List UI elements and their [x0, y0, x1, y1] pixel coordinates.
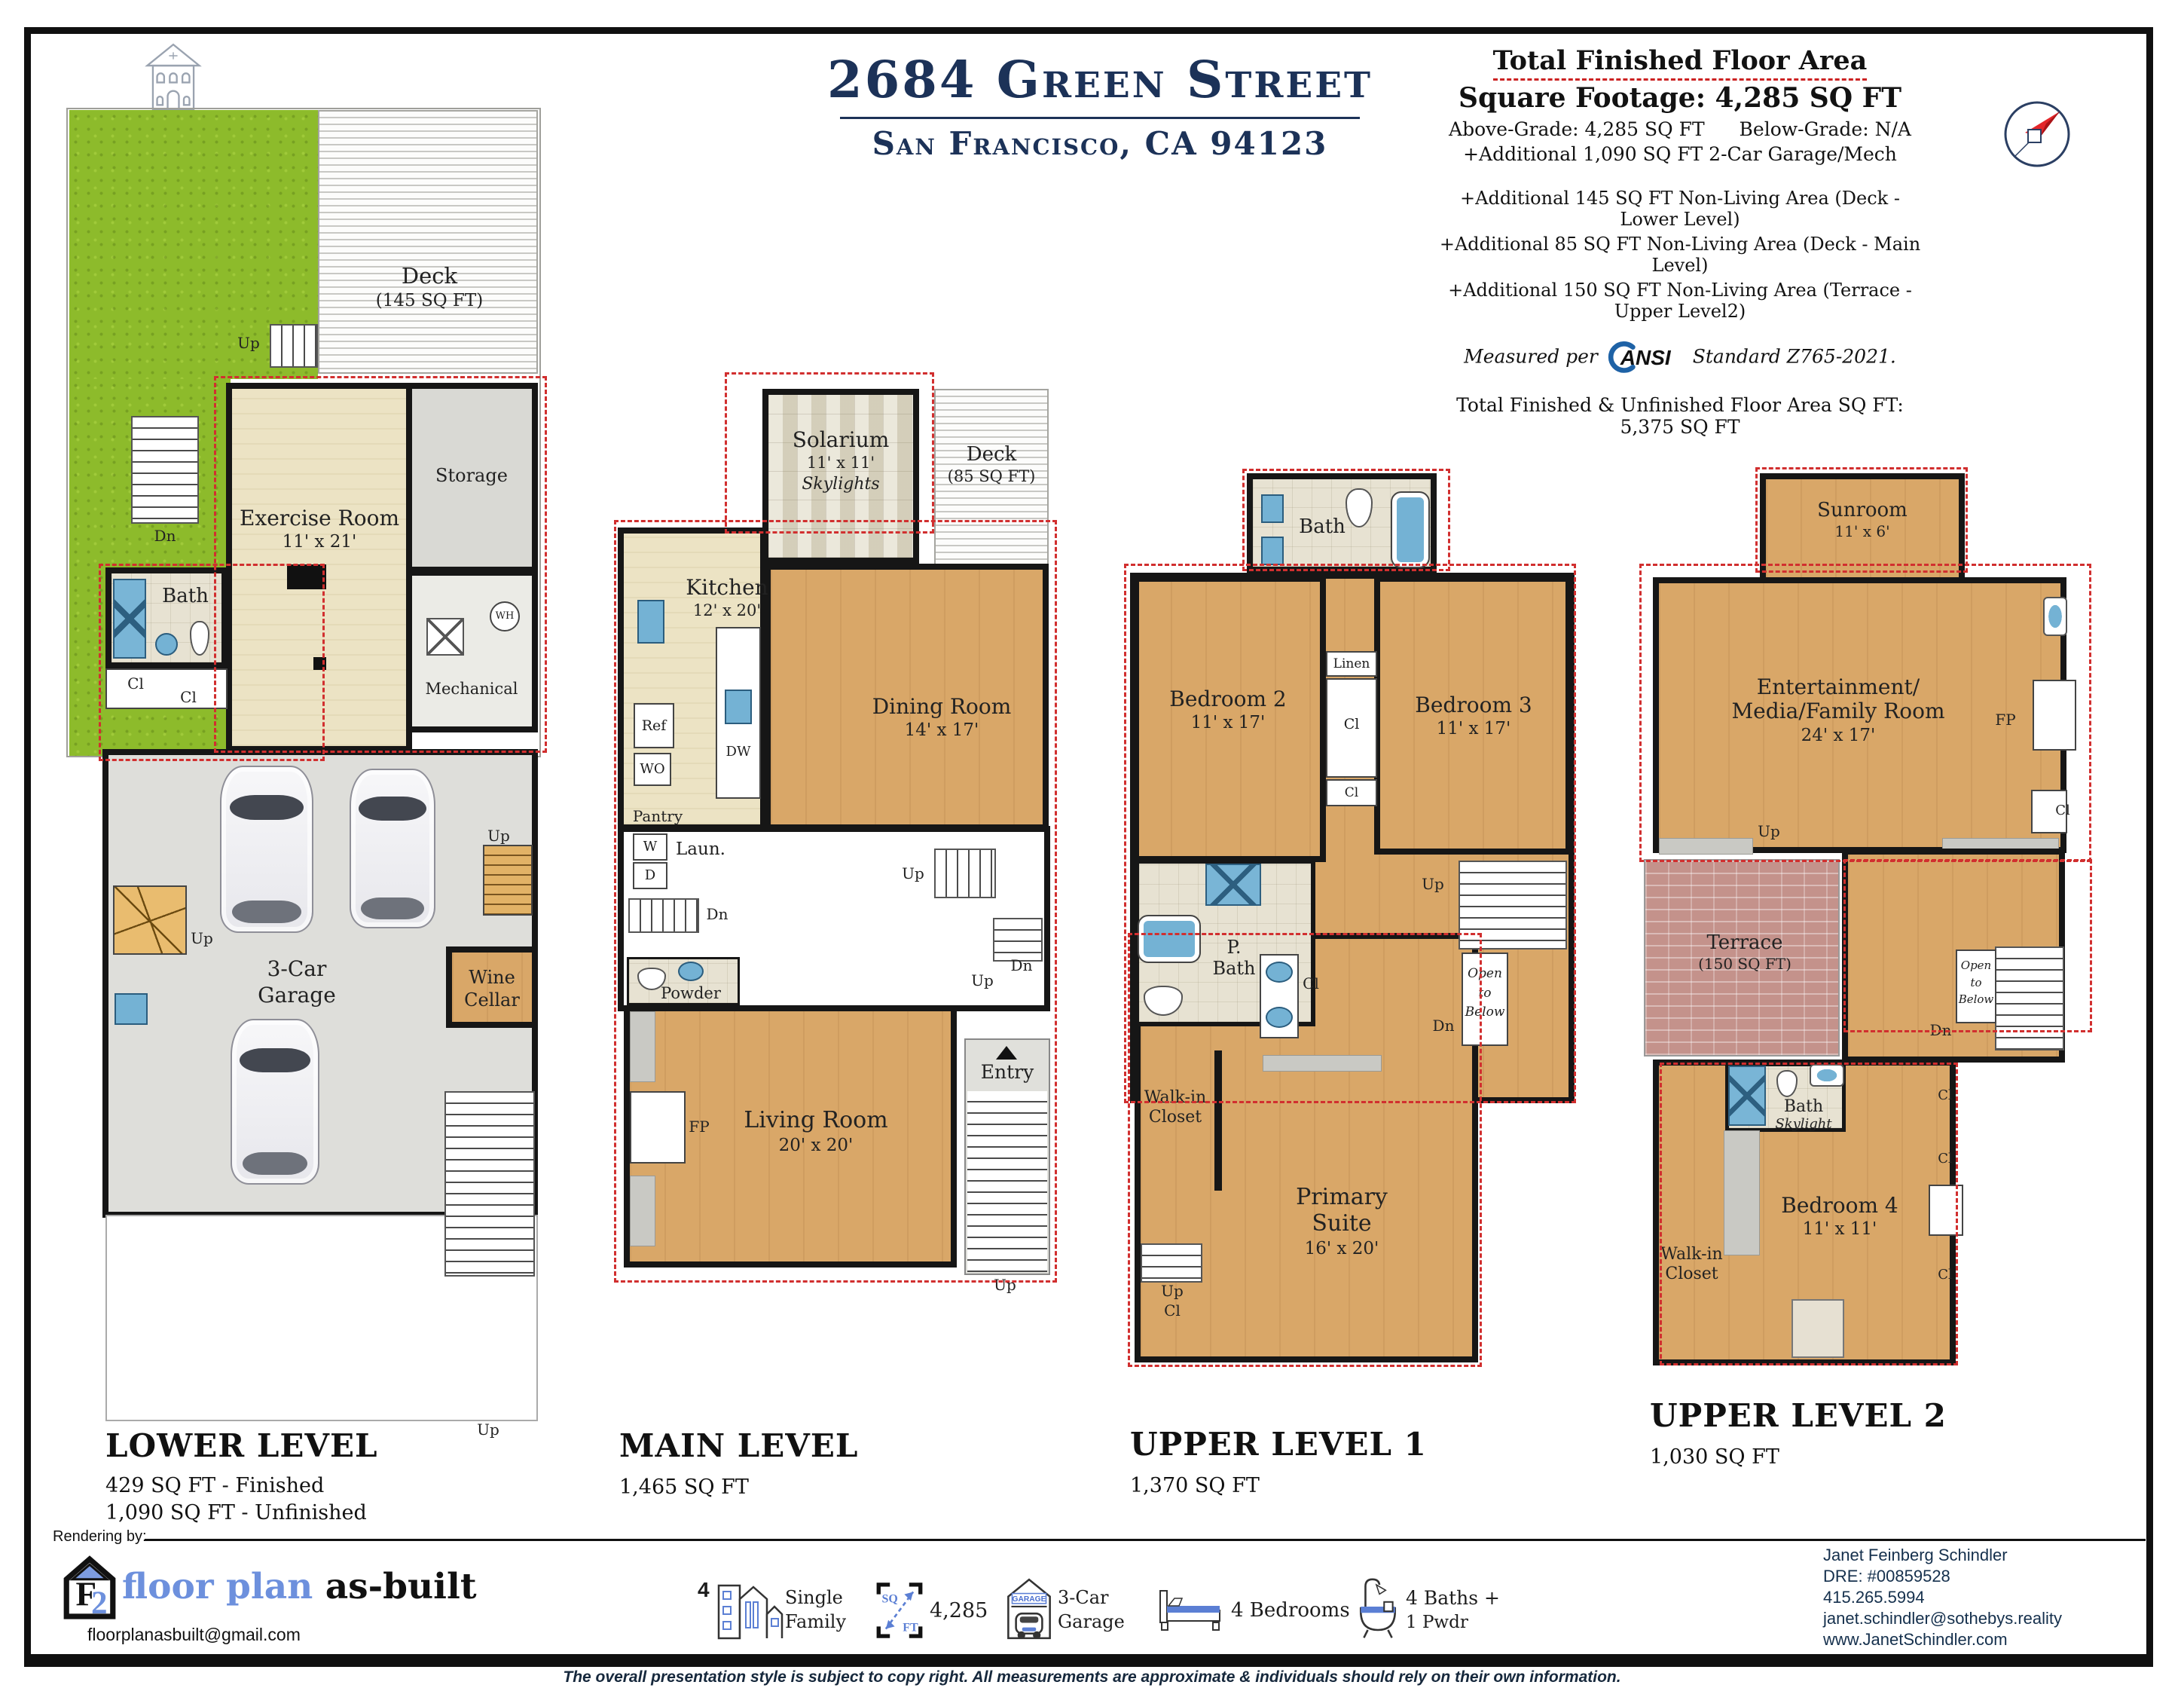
lower-bath-label: Bath — [148, 585, 223, 607]
address-block: 2684 Green Street San Francisco, CA 9412… — [768, 50, 1431, 162]
summary-add-terrace: +Additional 150 SQ FT Non-Living Area (T… — [1431, 280, 1929, 322]
main-up-label-1: Up — [897, 865, 930, 882]
u1-bath-sink-1 — [1261, 494, 1284, 523]
u2-bed4-name: Bedroom 4 — [1764, 1194, 1915, 1218]
measured-pre: Measured per — [1464, 346, 1598, 368]
bath-icon — [1355, 1573, 1401, 1640]
u1-closet-bar — [1263, 1055, 1382, 1072]
main-powder-sink — [678, 962, 704, 981]
main-dn-label-2: Dn — [1005, 957, 1038, 974]
stat-garage-l1: 3-Car — [1058, 1586, 1141, 1610]
main-ref-label: Ref — [642, 717, 667, 734]
main-dryer-box: D — [633, 862, 667, 889]
sqft-icon: SQ FT — [875, 1581, 924, 1640]
u2-bed4-label: Bedroom 4 11' x 11' — [1764, 1194, 1915, 1240]
main-pantry-label: Pantry — [624, 808, 692, 825]
area-summary: Total Finished Floor Area Square Footage… — [1431, 45, 1929, 438]
u1-dn-label: Dn — [1427, 1017, 1460, 1035]
fpb-logo-text: floor plan as-built — [122, 1566, 477, 1607]
u1-stair-small — [1141, 1243, 1202, 1283]
main-deck-label: Deck (85 SQ FT) — [937, 443, 1046, 486]
lower-storage-label: Storage — [411, 466, 533, 487]
summary-add-deck-lower: +Additional 145 SQ FT Non-Living Area (D… — [1431, 188, 1929, 230]
summary-total: Total Finished & Unfinished Floor Area S… — [1431, 394, 1929, 438]
lower-up-label-4: Up — [472, 1421, 505, 1439]
lower-wine-stair — [483, 845, 533, 916]
u2-dn-label: Dn — [1924, 1022, 1957, 1039]
u2-open-below-label: Open to Below — [1959, 959, 1994, 1006]
fpb-email: floorplanasbuilt@gmail.com — [87, 1625, 301, 1645]
fpb-logo-icon: F 2 — [60, 1552, 119, 1622]
measured-post: Standard Z765-2021. — [1693, 346, 1896, 368]
disclaimer: The overall presentation style is subjec… — [0, 1668, 2184, 1686]
u2-closet-niche-3 — [1791, 1299, 1844, 1358]
main-d-label: D — [645, 867, 655, 883]
u1-open-below-label: Open to Below — [1465, 966, 1505, 1020]
u2-skylight-label: Skylight — [1766, 1117, 1841, 1133]
u2-title: UPPER LEVEL 2 — [1650, 1397, 1947, 1434]
u1-bath-tub — [1392, 493, 1428, 567]
main-wall-accent-1 — [630, 1011, 655, 1082]
u2-cl-label-2: Cl — [1929, 1088, 1962, 1104]
agent-contact: Janet Feinberg Schindler DRE: #00859528 … — [1823, 1545, 2147, 1650]
agent-phone: 415.265.5994 — [1823, 1587, 2147, 1608]
stat-beds-label: 4 Bedrooms — [1231, 1599, 1350, 1622]
lower-up-label-2: Up — [185, 930, 218, 947]
garage-icon: GARAGE — [1005, 1575, 1053, 1641]
lower-sq1: 429 SQ FT - Finished — [105, 1474, 324, 1497]
lower-cl-2: Cl — [172, 689, 205, 706]
main-sq1: 1,465 SQ FT — [619, 1475, 749, 1499]
main-solarium-name: Solarium — [770, 428, 912, 452]
u1-open-below: Open to Below — [1462, 953, 1508, 1046]
summary-above: Above-Grade: 4,285 SQ FT — [1449, 118, 1705, 140]
summary-add-deck-main: +Additional 85 SQ FT Non-Living Area (De… — [1431, 234, 1929, 276]
main-washer-box: W — [633, 833, 667, 861]
u1-primary-name: Primary Suite — [1263, 1185, 1421, 1237]
lower-up-label-1: Up — [232, 335, 265, 352]
u2-wet-sink — [2043, 597, 2067, 636]
ansi-text: ANSI — [1620, 346, 1671, 370]
page-subtitle: San Francisco, CA 94123 — [768, 125, 1431, 162]
main-entry-arrow — [996, 1046, 1017, 1060]
u1-walkin-label: Walk-in Closet — [1136, 1088, 1214, 1127]
stat-baths-label: 4 Baths + 1 Pwdr — [1406, 1586, 1504, 1635]
u2-open-below: Open to Below — [1956, 949, 1996, 1023]
main-entry-label: Entry — [966, 1061, 1049, 1083]
lower-dn-stair-lawn — [131, 416, 199, 524]
u2-terrace-label: Terrace (150 SQ FT) — [1692, 931, 1798, 973]
u1-pbath-label: P. Bath — [1204, 937, 1264, 980]
u1-pbath-tub — [1139, 916, 1199, 962]
main-fireplace — [630, 1091, 686, 1164]
bed-icon — [1157, 1587, 1225, 1634]
u1-sq1: 1,370 SQ FT — [1130, 1474, 1260, 1497]
u1-bed2-label: Bedroom 2 11' x 17' — [1153, 687, 1303, 733]
u1-closet-small: Cl — [1326, 779, 1377, 806]
u1-bed3-name: Bedroom 3 — [1398, 693, 1549, 717]
floor-plan-sheet: SCHINDLER HOMES 2684 Green Street San Fr… — [0, 0, 2184, 1688]
u2-ent-name-2: Media/Family Room — [1725, 699, 1951, 723]
u2-walkin-label: Walk-in Closet — [1656, 1245, 1727, 1283]
u1-linen-label: Linen — [1333, 656, 1370, 671]
rendering-rule — [145, 1539, 2146, 1541]
main-w-label: W — [643, 839, 658, 855]
stat-units-count: 4 — [698, 1578, 710, 1602]
main-ref-box: Ref — [634, 703, 674, 748]
lower-title: LOWER LEVEL — [105, 1427, 378, 1464]
main-dw-label: DW — [719, 745, 758, 760]
main-up-label-2: Up — [966, 972, 999, 989]
main-deck-name: Deck — [937, 443, 1046, 466]
u1-walkin-wall — [1214, 1050, 1222, 1191]
u2-ent-label: Entertainment/ Media/Family Room 24' x 1… — [1725, 675, 1951, 746]
lower-cl-1: Cl — [119, 675, 152, 693]
u1-bed2-size: 11' x 17' — [1153, 713, 1303, 733]
fpb-text-1: floor plan — [122, 1566, 313, 1607]
agent-email: janet.schindler@sothebys.reality — [1823, 1608, 2147, 1629]
stat-sqft-value: 4,285 — [930, 1599, 988, 1622]
u1-cl-label-1: Cl — [1344, 716, 1360, 732]
car-2 — [350, 769, 435, 928]
rendering-by-label: Rendering by: — [53, 1528, 147, 1546]
main-kitchen-sink — [637, 600, 664, 644]
main-living-name: Living Room — [737, 1108, 895, 1134]
u1-cl-label-3: Cl — [1294, 975, 1327, 992]
u1-bed3-size: 11' x 17' — [1398, 719, 1549, 739]
lower-deck-size: (145 SQ FT) — [354, 291, 505, 311]
lower-exercise-size: 11' x 21' — [234, 532, 405, 552]
lower-up-stair-deck — [270, 324, 318, 368]
u2-bath-label: Bath — [1772, 1097, 1835, 1117]
u2-closet-niche-2 — [1929, 1185, 1963, 1236]
u1-pbath-sink-2 — [1266, 1007, 1293, 1028]
lower-sq2: 1,090 SQ FT - Unfinished — [105, 1501, 367, 1524]
agent-name: Janet Feinberg Schindler — [1823, 1545, 2147, 1566]
lower-entry-stair — [444, 1091, 535, 1277]
u1-bath-sink-2 — [1261, 537, 1284, 565]
svg-text:GARAGE: GARAGE — [1013, 1595, 1046, 1604]
main-laundry-label: Laun. — [670, 839, 731, 860]
main-wall-accent-2 — [630, 1176, 655, 1246]
lower-garage-label: 3-Car Garage — [225, 956, 368, 1008]
u1-bed3-label: Bedroom 3 11' x 17' — [1398, 693, 1549, 739]
wh-label: WH — [496, 610, 515, 622]
car-1 — [220, 766, 313, 933]
u2-up-label: Up — [1752, 823, 1785, 840]
u1-up-label-2: Up — [1156, 1283, 1189, 1300]
summary-footage: Square Footage: 4,285 SQ FT — [1431, 82, 1929, 114]
main-kitchen-label: Kitchen 12' x 20' — [663, 576, 791, 620]
main-dining-label: Dining Room 14' x 17' — [866, 695, 1017, 741]
u2-wardrobe — [1724, 1130, 1760, 1255]
main-solarium-size: 11' x 11' — [770, 454, 912, 472]
ansi-badge: ANSI — [1604, 341, 1687, 375]
main-kitchen-size: 12' x 20' — [663, 601, 791, 619]
main-island-sink — [725, 690, 752, 724]
u2-sq1: 1,030 SQ FT — [1650, 1445, 1779, 1469]
lower-laundry-sink — [115, 993, 148, 1025]
lower-equipment-block-2 — [313, 657, 326, 670]
main-fp-label: FP — [683, 1118, 716, 1136]
lower-deck-label: Deck (145 SQ FT) — [354, 264, 505, 310]
main-entry-steps — [967, 1091, 1047, 1272]
u1-primary-size: 16' x 20' — [1263, 1239, 1421, 1259]
u1-pbath-shower — [1205, 864, 1261, 906]
main-up-stair — [934, 849, 996, 898]
main-living-label: Living Room 20' x 20' — [737, 1108, 895, 1155]
lower-bath-sink — [155, 633, 178, 656]
main-up-label-3: Up — [988, 1277, 1022, 1294]
main-dn-stair-right — [993, 918, 1043, 962]
main-dining-size: 14' x 17' — [866, 720, 1017, 741]
stat-garage-l2: Garage — [1058, 1610, 1141, 1634]
main-title: MAIN LEVEL — [619, 1427, 858, 1464]
main-solarium-note: Skylights — [770, 475, 912, 494]
stat-units-l2: Family — [785, 1610, 860, 1634]
fpb-text-2: as-built — [325, 1566, 477, 1607]
u1-linen-box: Linen — [1326, 651, 1377, 677]
u2-bed4-size: 11' x 11' — [1764, 1219, 1915, 1240]
lower-winder-stair — [113, 885, 187, 955]
main-living-size: 20' x 20' — [737, 1136, 895, 1156]
page-title: 2684 Green Street — [768, 50, 1431, 109]
u1-up-label-1: Up — [1416, 876, 1449, 893]
u2-landing-1 — [1659, 838, 1753, 855]
u2-stair — [1995, 946, 2064, 1050]
stat-units-l1: Single — [785, 1586, 860, 1610]
u1-cl-label-2: Cl — [1345, 785, 1358, 800]
main-dining-name: Dining Room — [866, 695, 1017, 719]
u2-terrace-name: Terrace — [1692, 931, 1798, 954]
agent-website: www.JanetSchindler.com — [1823, 1629, 2147, 1650]
u1-cl-label-4: Cl — [1156, 1302, 1189, 1320]
u2-fireplace — [2033, 680, 2076, 751]
lower-up-label-3: Up — [482, 827, 515, 845]
u1-primary-label: Primary Suite 16' x 20' — [1263, 1185, 1421, 1258]
agent-dre: DRE: #00859528 — [1823, 1566, 2147, 1587]
schindler-house-icon — [142, 39, 205, 115]
main-kitchen-name: Kitchen — [663, 576, 791, 600]
u2-bath-sink — [1810, 1064, 1844, 1087]
main-wo-box: WO — [634, 753, 671, 786]
u2-terrace-size: (150 SQ FT) — [1692, 956, 1798, 973]
summary-title: Total Finished Floor Area — [1493, 45, 1868, 76]
title-rule — [840, 117, 1360, 119]
u1-title: UPPER LEVEL 1 — [1130, 1426, 1427, 1463]
u2-ent-size: 24' x 17' — [1725, 726, 1951, 746]
u1-pbath-sink-1 — [1266, 962, 1293, 983]
water-heater-icon: WH — [490, 601, 520, 631]
main-powder-label: Powder — [649, 984, 732, 1002]
main-deck-size: (85 SQ FT) — [937, 467, 1046, 485]
summary-measured: Measured per ANSI Standard Z765-2021. — [1431, 341, 1929, 375]
lower-mech-label: Mechanical — [408, 680, 536, 698]
lower-deck-name: Deck — [354, 264, 505, 289]
lower-equipment-block — [287, 564, 326, 589]
svg-text:SQ: SQ — [882, 1592, 898, 1605]
u2-fp-label: FP — [1989, 711, 2022, 729]
lower-deck — [318, 110, 538, 374]
lower-dn-label: Dn — [140, 527, 190, 545]
u2-cl-label-1: Cl — [2046, 803, 2079, 819]
stat-units-label: Single Family — [785, 1586, 860, 1634]
u2-ent-name-1: Entertainment/ — [1725, 675, 1951, 699]
svg-text:FT: FT — [903, 1622, 918, 1634]
stat-baths-l1: 4 Baths + — [1406, 1586, 1504, 1610]
compass-icon — [2001, 98, 2073, 170]
stat-baths-l2: 1 Pwdr — [1406, 1610, 1504, 1635]
svg-text:2: 2 — [91, 1586, 108, 1621]
stat-garage-label: 3-Car Garage — [1058, 1586, 1141, 1634]
u2-cl-label-3: Cl — [1929, 1151, 1962, 1167]
main-wo-label: WO — [640, 761, 664, 777]
u2-sunroom-size: 11' x 6' — [1779, 523, 1945, 540]
car-3 — [231, 1019, 319, 1185]
buildings-icon — [717, 1576, 783, 1641]
u2-shower — [1728, 1066, 1766, 1126]
u2-cl-label-4: Cl — [1929, 1268, 1962, 1283]
summary-add-garage: +Additional 1,090 SQ FT 2-Car Garage/Mec… — [1431, 143, 1929, 165]
lower-shower — [113, 579, 146, 659]
main-solarium-label: Solarium 11' x 11' Skylights — [770, 428, 912, 494]
u1-bath-label: Bath — [1288, 515, 1356, 538]
lower-exercise-name: Exercise Room — [234, 506, 405, 531]
summary-grade: Above-Grade: 4,285 SQ FT Below-Grade: N/… — [1431, 118, 1929, 140]
u2-sunroom-name: Sunroom — [1779, 499, 1945, 521]
u2-sunroom-label: Sunroom 11' x 6' — [1779, 499, 1945, 540]
summary-below: Below-Grade: N/A — [1740, 118, 1911, 140]
u1-bed2-name: Bedroom 2 — [1153, 687, 1303, 711]
u1-closet-tall: Cl — [1326, 678, 1377, 778]
lower-wine-label: Wine Cellar — [451, 966, 533, 1011]
main-dn-label: Dn — [701, 906, 734, 923]
lower-mech-equipment — [426, 618, 464, 656]
main-dn-stair — [628, 898, 699, 933]
u1-stair — [1459, 861, 1567, 949]
lower-exercise-label: Exercise Room 11' x 21' — [234, 506, 405, 552]
